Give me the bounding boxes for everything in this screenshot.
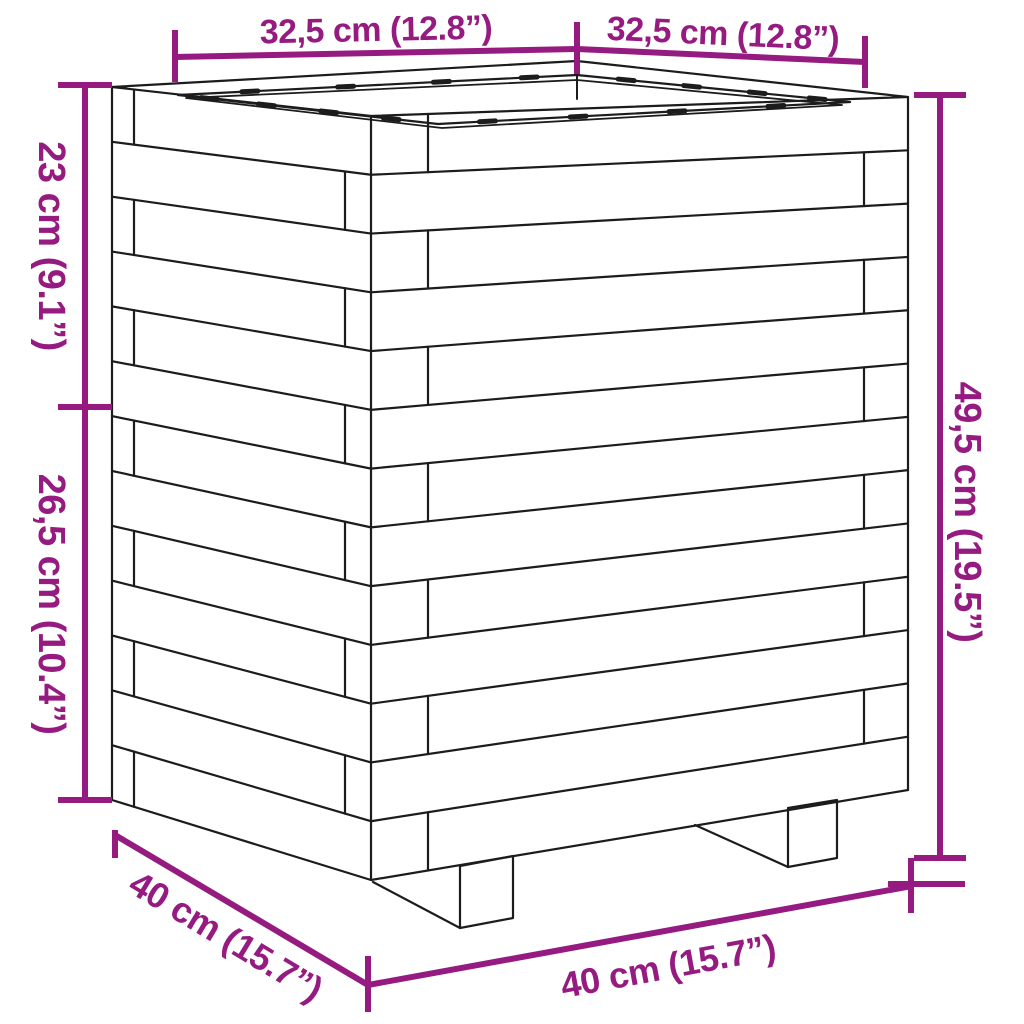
- rim-joint-dash-0-3: [521, 77, 537, 78]
- rim-joint-dash-2-1: [669, 111, 685, 112]
- dim-label-left-lower-height: 26,5 cm (10.4”): [30, 474, 72, 735]
- rim-joint-dash-1-1: [684, 86, 700, 88]
- dim-label-top-left-width: 32,5 cm (12.8”): [259, 9, 492, 52]
- dim-label-bottom-side-depth: 40 cm (15.7”): [122, 862, 330, 1009]
- dimension-labels: 32,5 cm (12.8”) 32,5 cm (12.8”) 23 cm (9…: [30, 9, 988, 1010]
- slat-line-11: [112, 683, 908, 762]
- planter-foot-front-edge: [373, 882, 460, 928]
- slat-line-5: [112, 361, 908, 410]
- dim-line-top-left: [175, 49, 577, 57]
- slat-line-10: [112, 630, 908, 704]
- slat-line-2: [112, 197, 908, 234]
- rim-joint-dash-0-0: [242, 91, 258, 92]
- dim-label-right-total-height: 49,5 cm (19.5”): [946, 382, 988, 643]
- rim-joint-dash-3-0: [383, 118, 399, 120]
- slat-line-9: [112, 577, 908, 645]
- rim-joint-dash-3-2: [258, 104, 274, 106]
- rim-joint-dash-2-0: [768, 106, 784, 107]
- rim-joint-dash-0-1: [338, 86, 354, 87]
- rim-joint-dash-3-3: [201, 98, 217, 100]
- slat-line-4: [112, 306, 908, 351]
- planter-foot-right: [788, 800, 837, 867]
- rim-joint-dash-2-3: [479, 121, 495, 122]
- planter-foot-right-edge: [695, 825, 788, 867]
- slat-line-6: [112, 416, 908, 469]
- slat-line-7: [112, 470, 908, 527]
- slat-line-1: [112, 142, 908, 175]
- slat-line-3: [112, 252, 908, 293]
- rim-joint-dash-2-2: [570, 116, 586, 117]
- dim-label-left-upper-height: 23 cm (9.1”): [30, 141, 72, 350]
- rim-joint-dash-3-1: [321, 111, 337, 113]
- planter-foot-front: [460, 856, 513, 928]
- planter-wireframe: [112, 61, 908, 928]
- rim-joint-dash-0-2: [433, 81, 449, 82]
- planter-dimension-diagram: 32,5 cm (12.8”) 32,5 cm (12.8”) 23 cm (9…: [0, 0, 1024, 1024]
- rim-joint-dash-1-2: [749, 92, 765, 94]
- slat-line-8: [112, 523, 908, 586]
- rim-joint-dash-1-3: [809, 98, 825, 100]
- dim-label-bottom-front-width: 40 cm (15.7”): [557, 926, 778, 1006]
- rim-joint-dash-1-0: [618, 79, 634, 81]
